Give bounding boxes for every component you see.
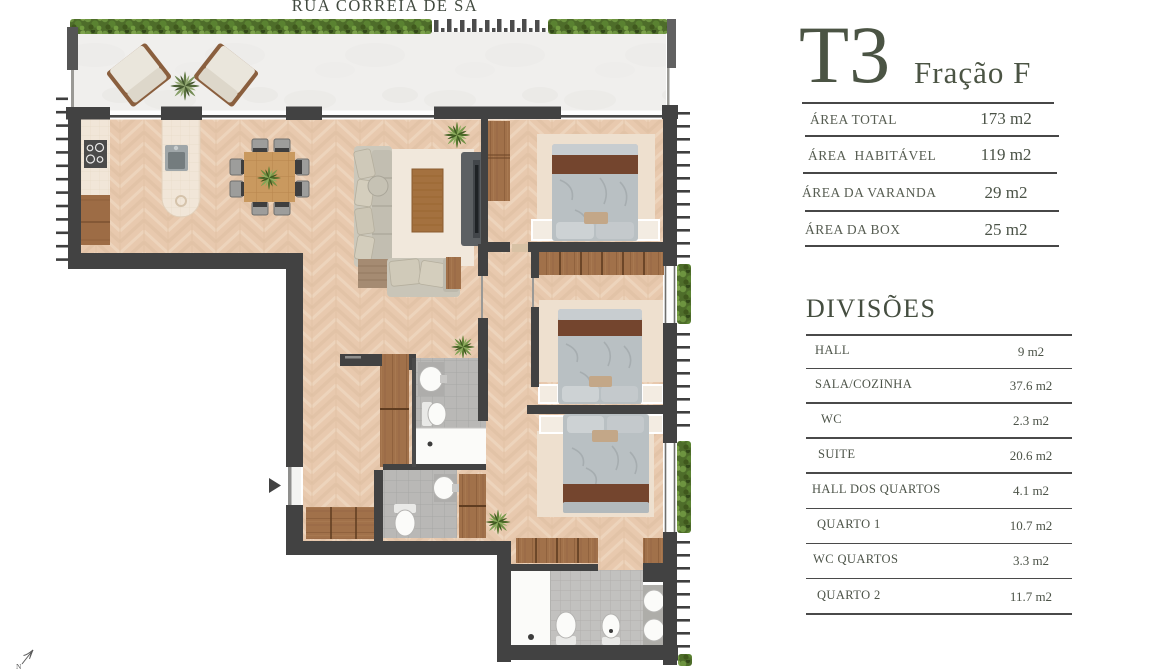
svg-text:RUA CORREIA DE SA: RUA CORREIA DE SA	[292, 0, 478, 15]
svg-text:N: N	[16, 662, 22, 670]
